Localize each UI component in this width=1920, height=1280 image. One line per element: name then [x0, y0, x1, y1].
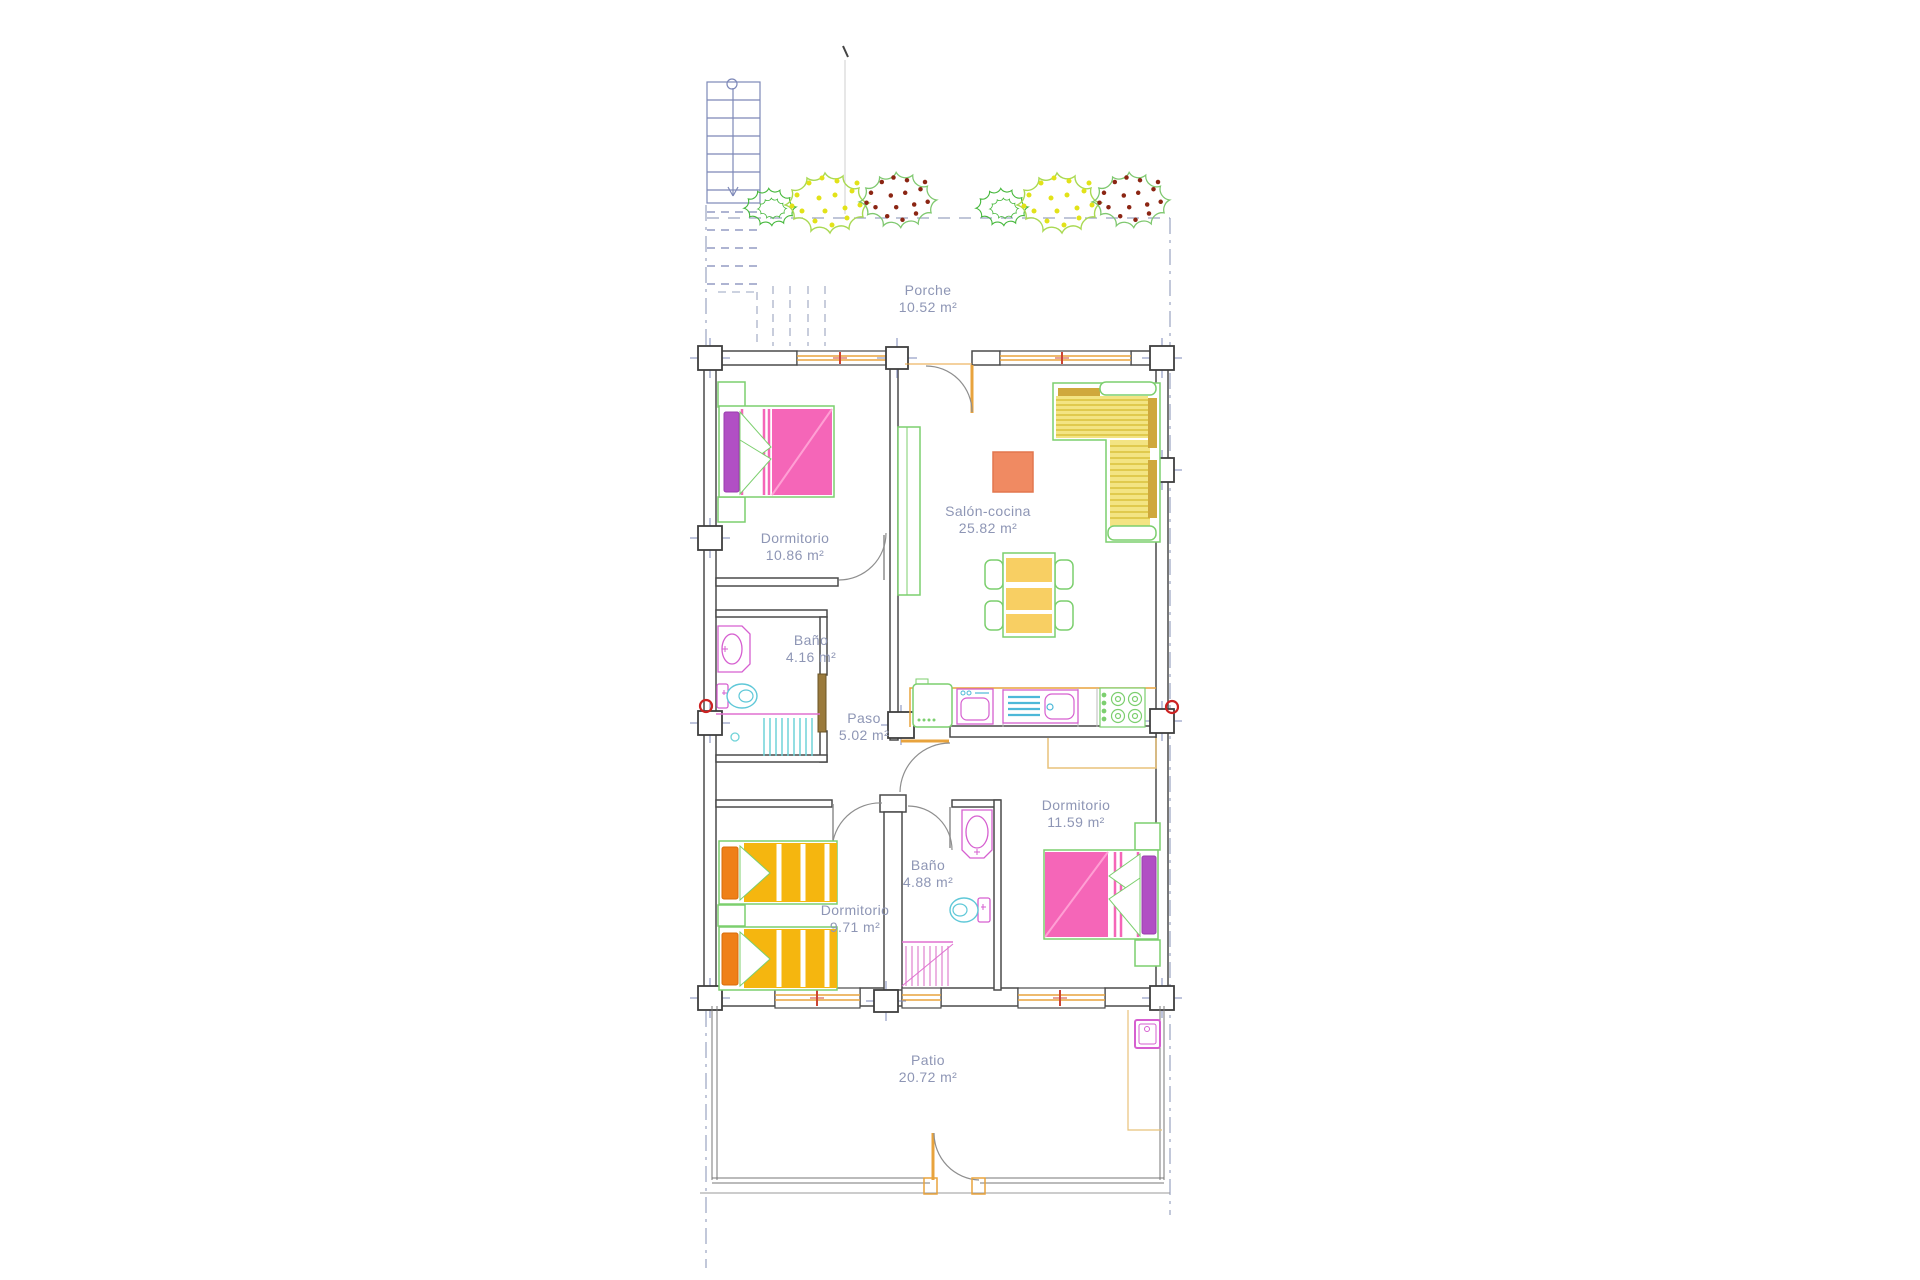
washing-machine-icon — [1135, 1020, 1160, 1048]
window-icon — [1018, 988, 1105, 1008]
sliding-door-leaf — [818, 674, 826, 732]
single-bed-icon — [719, 927, 837, 990]
bathroom-2-fixtures — [902, 810, 992, 986]
patio-door-icon — [924, 1133, 985, 1194]
room-label-salon-cocina: Salón-cocina25.82 m² — [945, 503, 1031, 537]
room-label-dormitorio-1: Dormitorio10.86 m² — [761, 530, 830, 564]
bush-icon — [1017, 173, 1101, 233]
shower-icon — [902, 942, 953, 986]
entrance-door-icon — [905, 364, 972, 413]
room-label-porche: Porche10.52 m² — [899, 282, 957, 316]
nightstand-icon — [718, 905, 745, 926]
door-icon — [839, 533, 886, 580]
window-icon — [797, 351, 887, 365]
double-bed-icon — [718, 382, 834, 522]
window-icon — [902, 988, 941, 1008]
sofa-icon — [1053, 382, 1160, 542]
room-label-bano-2: Baño4.88 m² — [903, 857, 953, 891]
toilet-icon — [950, 898, 990, 922]
rug-icon — [993, 452, 1033, 492]
window-icon — [775, 988, 860, 1008]
room-label-bano-1: Baño4.16 m² — [786, 632, 836, 666]
washbasin-icon — [718, 626, 750, 672]
bush-icon — [1092, 172, 1169, 227]
dining-table-icon — [985, 553, 1073, 637]
dishwasher-icon — [1003, 690, 1078, 723]
door-icon — [832, 803, 882, 850]
window-icon — [1000, 351, 1131, 365]
floor-plan-canvas: Porche10.52 m² Dormitorio10.86 m² Salón-… — [0, 0, 1920, 1280]
room-label-dormitorio-2: Dormitorio11.59 m² — [1042, 797, 1111, 831]
porch-step-lines — [718, 286, 825, 346]
room-label-dormitorio-3: Dormitorio9.71 m² — [821, 902, 890, 936]
closet — [898, 427, 920, 595]
single-bed-icon — [719, 841, 837, 904]
toilet-icon — [717, 684, 757, 708]
door-icon — [900, 741, 950, 792]
bush-icon — [785, 173, 869, 233]
fridge-icon — [913, 679, 952, 727]
bush-icon — [859, 172, 936, 227]
shrub-row — [744, 172, 1170, 233]
double-bed-icon — [1044, 823, 1160, 966]
wardrobe-icon — [1048, 738, 1156, 768]
patio-enclosure — [700, 1006, 1170, 1194]
kitchen-counter — [910, 679, 1156, 727]
stairs-icon — [707, 79, 760, 284]
floor-plan-drawing — [0, 0, 1920, 1280]
site-leader-mark — [843, 46, 848, 214]
shower-icon — [716, 714, 820, 756]
hob-icon — [1100, 688, 1145, 727]
sink-icon — [957, 689, 993, 724]
door-icon — [908, 806, 952, 850]
washbasin-icon — [962, 810, 992, 858]
room-label-patio: Patio20.72 m² — [899, 1052, 957, 1086]
room-label-paso: Paso5.02 m² — [839, 710, 889, 744]
